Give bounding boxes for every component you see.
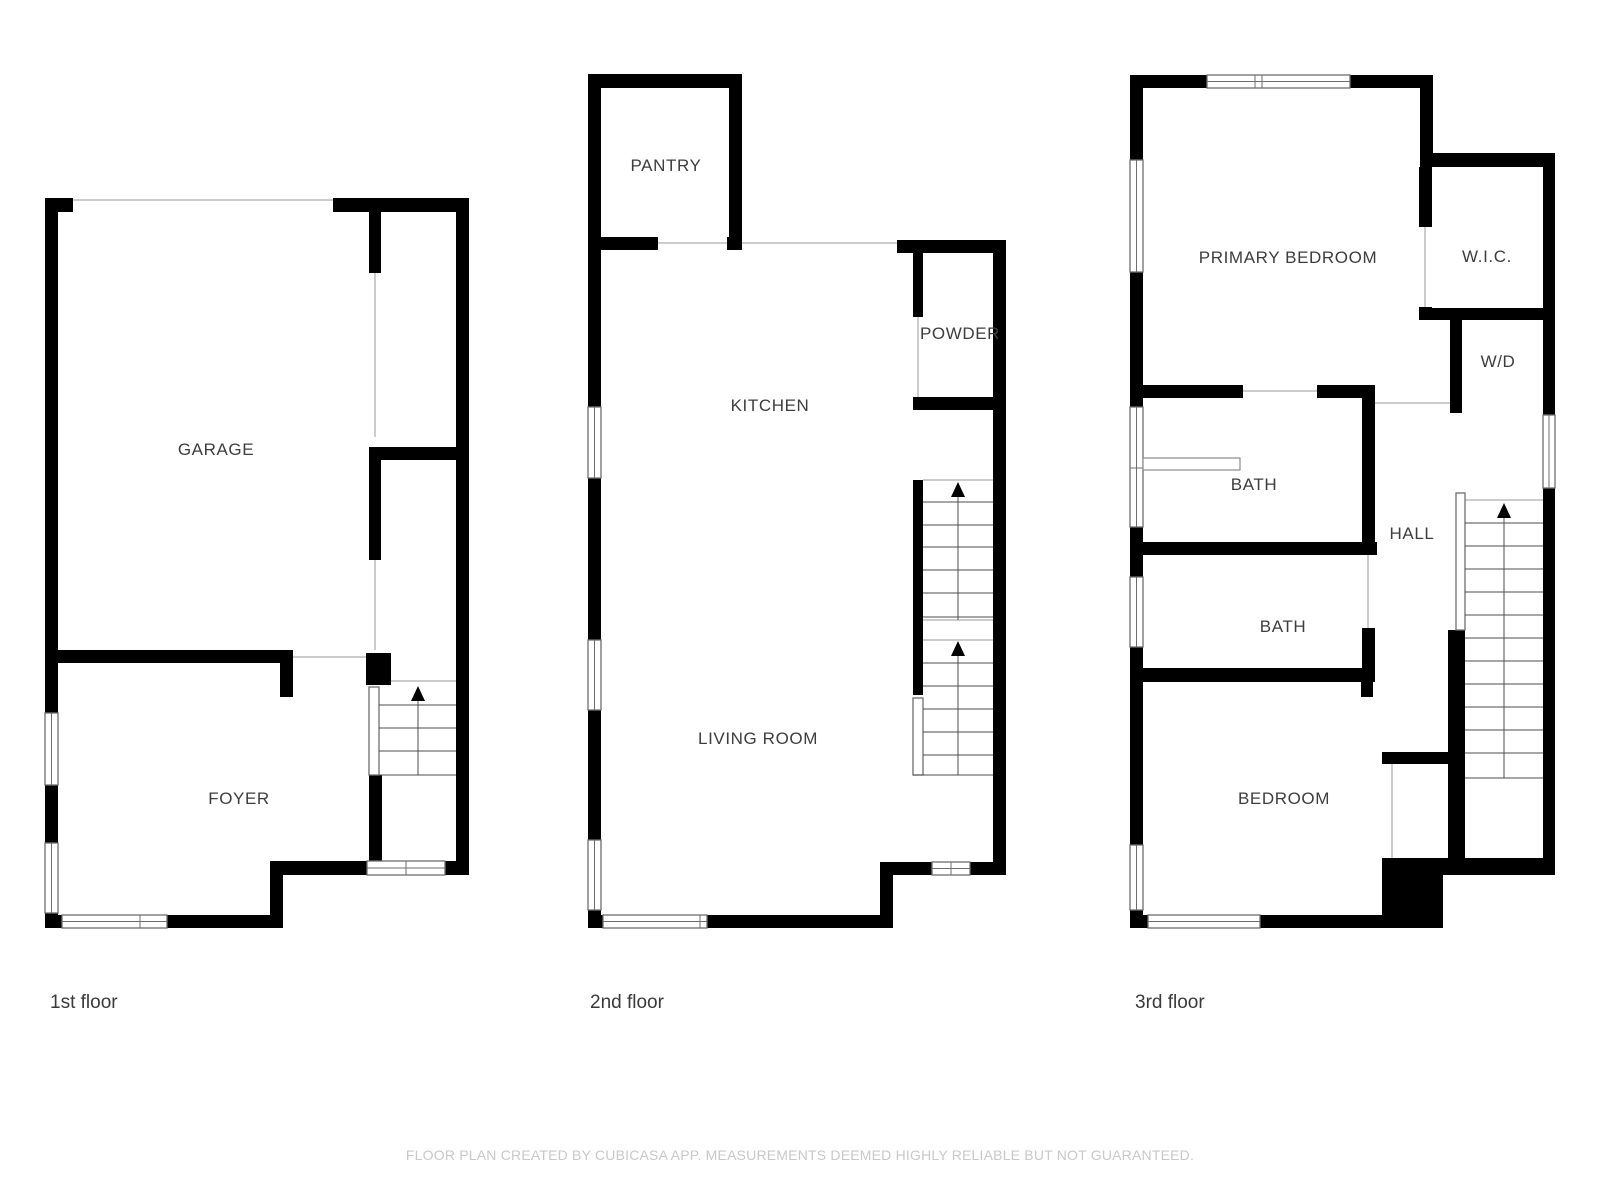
floor2-openings bbox=[658, 243, 993, 640]
floorplan-canvas bbox=[0, 0, 1600, 1200]
floor1-windows bbox=[45, 713, 445, 928]
floor-caption-2nd: 2nd floor bbox=[590, 992, 664, 1014]
window bbox=[62, 915, 167, 928]
room-label-garage: GARAGE bbox=[178, 440, 254, 460]
floor3-walls bbox=[1130, 75, 1555, 928]
window bbox=[1130, 160, 1143, 272]
window bbox=[932, 862, 970, 875]
floor3-fixtures bbox=[1143, 458, 1240, 470]
window bbox=[1148, 915, 1260, 928]
stairs-up-arrow-icon bbox=[951, 482, 965, 497]
stair-rail bbox=[369, 687, 379, 775]
floor3-stairs bbox=[1456, 493, 1543, 778]
floor-caption-1st: 1st floor bbox=[50, 992, 118, 1014]
window bbox=[367, 861, 445, 875]
window bbox=[588, 840, 601, 910]
room-label-bath-upper: BATH bbox=[1231, 475, 1277, 495]
floor3-windows bbox=[1130, 75, 1555, 928]
stairs-up-arrow-icon bbox=[411, 686, 425, 701]
window bbox=[1543, 415, 1555, 488]
room-label-kitchen: KITCHEN bbox=[731, 396, 810, 416]
room-label-primary-bedroom: PRIMARY BEDROOM bbox=[1199, 248, 1377, 268]
room-label-bedroom: BEDROOM bbox=[1238, 789, 1330, 809]
floor1-walls bbox=[45, 198, 469, 928]
floor-caption-3rd: 3rd floor bbox=[1135, 992, 1205, 1014]
floor2-windows bbox=[588, 407, 970, 928]
room-label-bath-lower: BATH bbox=[1260, 617, 1306, 637]
window bbox=[1130, 407, 1143, 527]
stairs-up-arrow-icon bbox=[951, 641, 965, 656]
room-label-pantry: PANTRY bbox=[631, 156, 702, 176]
stairs-up-arrow-icon bbox=[1497, 503, 1511, 518]
window bbox=[1207, 75, 1350, 88]
room-label-foyer: FOYER bbox=[208, 789, 270, 809]
room-label-powder: POWDER bbox=[920, 324, 1000, 344]
floor1-stairs bbox=[369, 686, 456, 775]
stair-rail bbox=[913, 698, 923, 775]
window bbox=[1130, 845, 1143, 910]
bath-vanity bbox=[1143, 458, 1240, 470]
room-label-wd: W/D bbox=[1481, 352, 1516, 372]
room-label-wic: W.I.C. bbox=[1462, 247, 1512, 267]
floorplan-page: GARAGE FOYER PANTRY KITCHEN POWDER LIVIN… bbox=[0, 0, 1600, 1200]
disclaimer-text: FLOOR PLAN CREATED BY CUBICASA APP. MEAS… bbox=[0, 1147, 1600, 1163]
floor2-walls bbox=[588, 74, 1006, 928]
stair-rail bbox=[1456, 493, 1465, 630]
floor2-stairs bbox=[913, 482, 993, 775]
window bbox=[603, 915, 707, 928]
window bbox=[45, 713, 58, 785]
room-label-living-room: LIVING ROOM bbox=[698, 729, 818, 749]
window bbox=[588, 640, 601, 710]
window bbox=[1130, 577, 1143, 647]
room-label-hall: HALL bbox=[1390, 524, 1435, 544]
floor1-openings bbox=[73, 200, 456, 681]
window bbox=[45, 843, 58, 913]
window bbox=[588, 407, 601, 478]
